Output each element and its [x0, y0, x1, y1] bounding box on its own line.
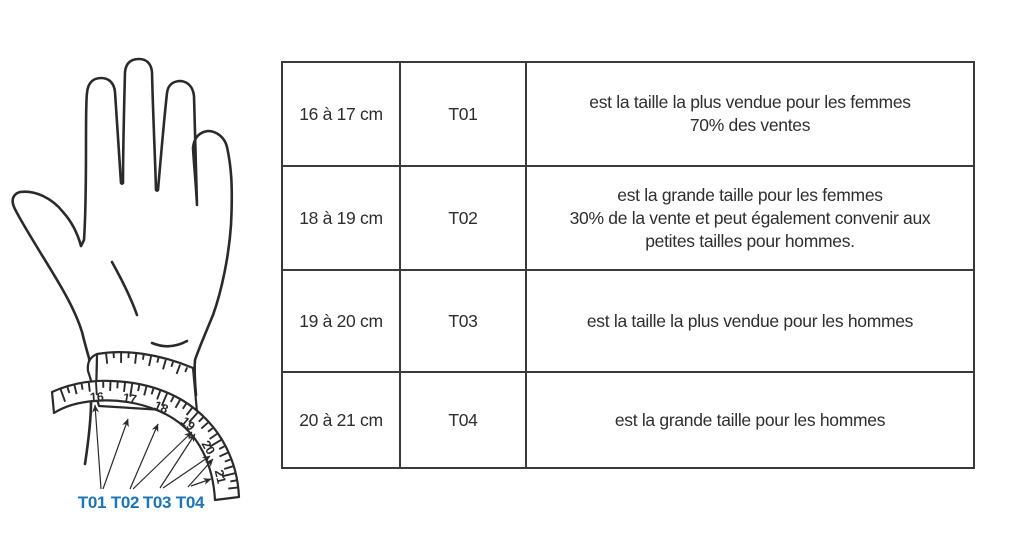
size-range-cell: 20 à 21 cm — [283, 373, 401, 467]
size-label-t01: T01 — [78, 493, 106, 512]
size-code-cell: T02 — [401, 167, 527, 271]
size-code-cell: T04 — [401, 373, 527, 467]
size-code-cell: T01 — [401, 63, 527, 167]
size-range-cell: 18 à 19 cm — [283, 167, 401, 271]
size-code-cell: T03 — [401, 271, 527, 373]
tape-number: 16 — [89, 390, 104, 405]
size-description-cell: est la taille la plus vendue pour les ho… — [527, 271, 973, 373]
size-description-cell: est la grande taille pour les hommes — [527, 373, 973, 467]
size-description-cell: est la grande taille pour les femmes 30%… — [527, 167, 973, 271]
size-range-cell: 19 à 20 cm — [283, 271, 401, 373]
tape-number: 17 — [122, 391, 138, 407]
size-label-t02: T02 — [111, 493, 139, 512]
glove-size-table: 16 à 17 cm T01 est la taille la plus ven… — [281, 61, 975, 469]
size-label-t03: T03 — [143, 493, 171, 512]
size-description-cell: est la taille la plus vendue pour les fe… — [527, 63, 973, 167]
wrist-crease — [152, 341, 187, 346]
palm-crease — [112, 262, 137, 315]
size-label-t04: T04 — [176, 493, 205, 512]
size-range-cell: 16 à 17 cm — [283, 63, 401, 167]
hand-measurement-illustration: 161718192021 T01 T02 T03 T04 — [0, 0, 260, 533]
